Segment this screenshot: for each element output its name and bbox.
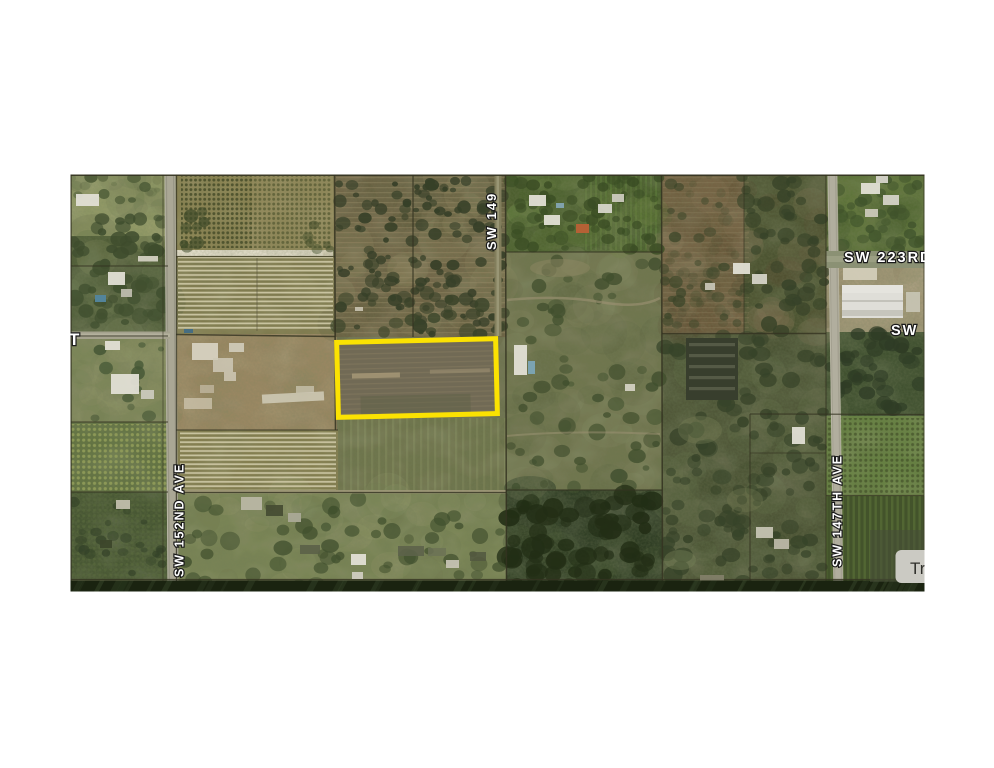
- svg-text:SW 147TH AVE: SW 147TH AVE: [831, 454, 845, 567]
- svg-text:SW 223RD: SW 223RD: [844, 250, 933, 266]
- svg-text:SW 149: SW 149: [484, 192, 499, 250]
- svg-text:T: T: [69, 330, 81, 349]
- svg-text:Tr: Tr: [910, 559, 926, 578]
- svg-text:SW 152ND AVE: SW 152ND AVE: [173, 463, 187, 577]
- svg-text:SW: SW: [891, 323, 918, 339]
